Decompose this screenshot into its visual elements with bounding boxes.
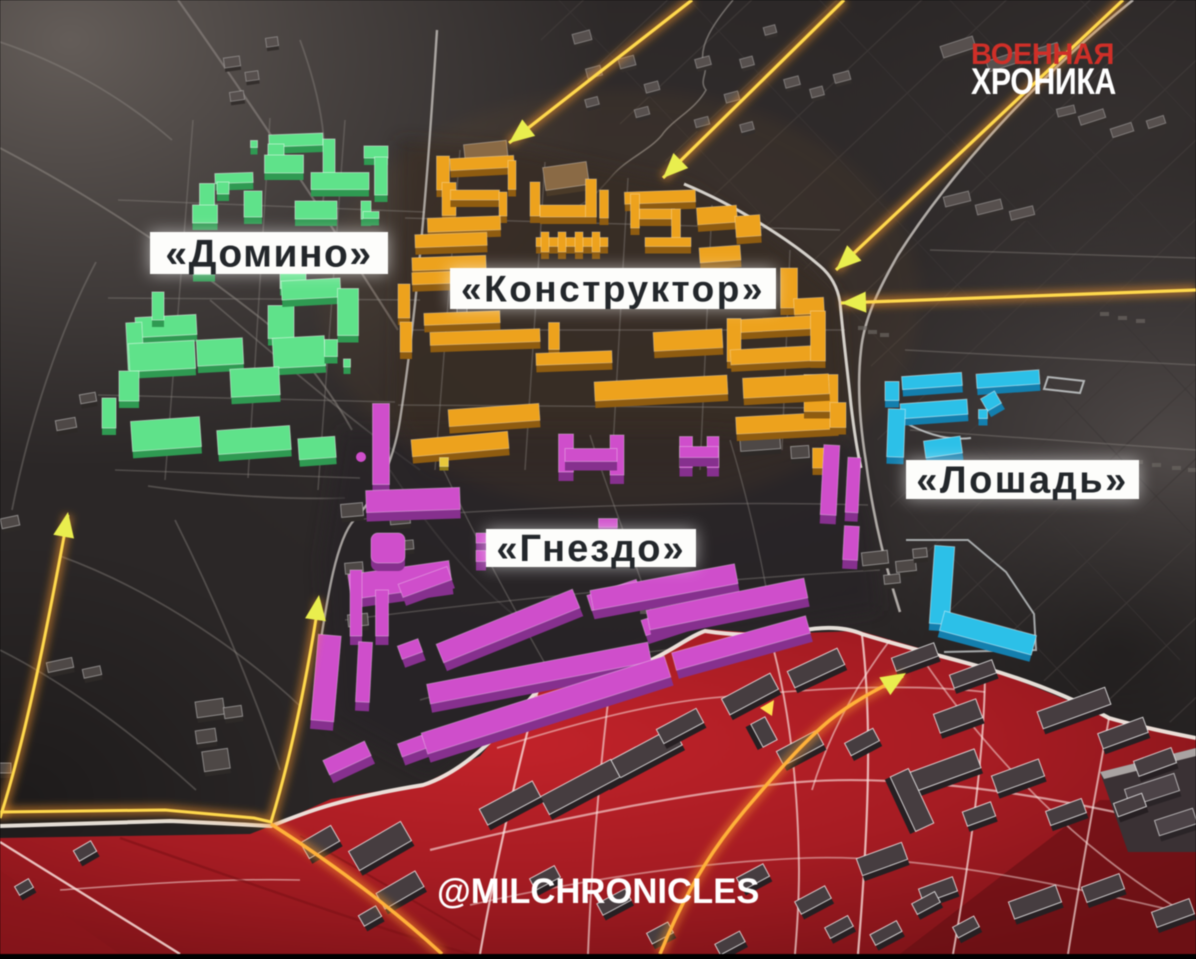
svg-text:ХРОНИКА: ХРОНИКА xyxy=(971,61,1116,103)
svg-text:«Конструктор»: «Конструктор» xyxy=(461,268,765,309)
svg-text:«Лошадь»: «Лошадь» xyxy=(916,460,1128,502)
svg-text:«Домино»: «Домино» xyxy=(165,232,372,275)
svg-text:@MILCHRONICLES: @MILCHRONICLES xyxy=(437,872,759,911)
svg-text:«Гнездо»: «Гнездо» xyxy=(496,528,685,570)
